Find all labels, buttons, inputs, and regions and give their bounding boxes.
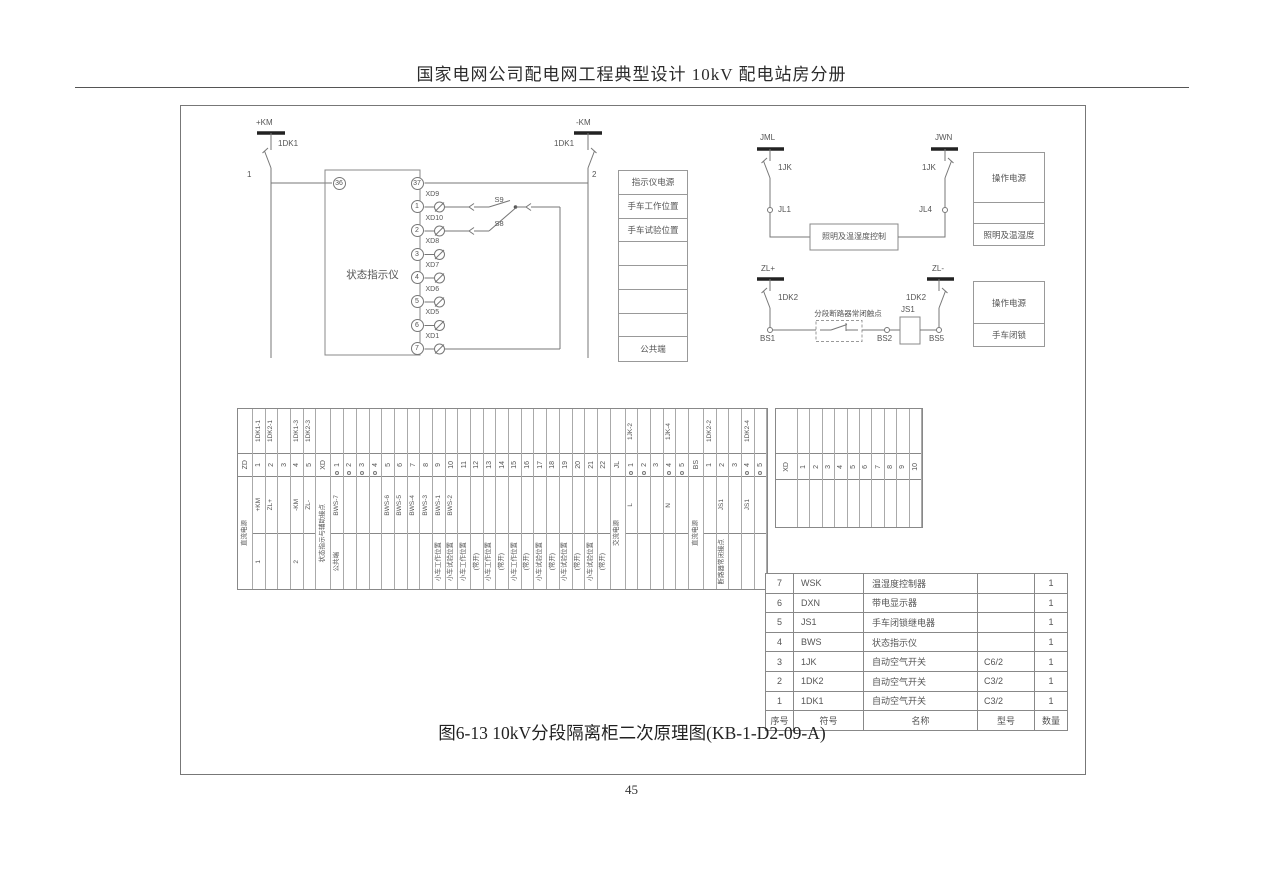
terminal-number: 3 <box>653 463 660 467</box>
terminal-column: 11 小车工作位置 <box>458 409 471 589</box>
function-label: 小车工作位置 <box>461 542 468 581</box>
terminal-number: 16 <box>524 461 531 469</box>
cell-name: 自动空气开关 <box>864 652 978 671</box>
cell-name: 温湿度控制器 <box>864 574 978 593</box>
terminal-number: 4 <box>744 463 751 467</box>
terminal-column: 1DK1-1 1 +KM 1 <box>253 409 266 589</box>
jumper-mark <box>629 471 633 475</box>
jumper-mark <box>642 471 646 475</box>
jumper-mark <box>680 471 684 475</box>
terminal-number: 17 <box>537 461 544 469</box>
cell-model: C6/2 <box>978 652 1035 671</box>
terminal-group-zd: ZD 直流电源 1DK1-1 1 +KM 1 1DK2-1 2 ZL+ <box>238 409 316 589</box>
jumper-mark <box>758 471 762 475</box>
cell-symbol: WSK <box>794 574 864 593</box>
function-label: (常开) <box>550 553 557 570</box>
terminal-label-jl1: JL1 <box>778 206 791 214</box>
switch-label: S9 <box>495 195 504 204</box>
group-name: XD <box>320 460 327 470</box>
terminal-column: 10 BWS-2 小车试验位置 <box>446 409 459 589</box>
terminal-column: 5 <box>676 409 689 589</box>
terminal-column: 8 BWS-3 <box>420 409 433 589</box>
group-name: JL <box>614 461 621 468</box>
bus-label-km-plus: +KM <box>256 119 273 127</box>
terminal-number: 14 <box>499 461 506 469</box>
cell-qty: 1 <box>1035 613 1067 632</box>
xd-terminal-strip: XD 1 2 3 <box>775 408 923 528</box>
cell-symbol: 1DK1 <box>794 692 864 711</box>
legend-row: 手车工作位置 <box>619 195 687 219</box>
indicator-legend-table: 指示仪电源手车工作位置手车试验位置公共端 <box>618 170 688 362</box>
terminal-number: 3 <box>732 463 739 467</box>
cell-seq: 6 <box>766 594 794 613</box>
wire-label-mid: BWS-3 <box>423 495 430 516</box>
terminal-group-bs: BS 直流电源 1DK2-2 1 2 JS1 <box>689 409 767 589</box>
lamp-label: XD8 <box>426 238 440 245</box>
cell-model <box>978 574 1035 593</box>
bus-label-zl-minus: ZL- <box>932 265 944 273</box>
cell-qty: 1 <box>1035 692 1067 711</box>
terminal-number: 19 <box>562 461 569 469</box>
function-label: (常开) <box>600 553 607 570</box>
main-terminal-strip: ZD 直流电源 1DK1-1 1 +KM 1 1DK2-1 2 ZL+ <box>237 408 768 590</box>
cell-qty: 1 <box>1035 672 1067 691</box>
breaker-label-1dk2-left: 1DK2 <box>778 294 798 302</box>
legend-row: 操作电源 <box>974 282 1044 324</box>
function-label: 小车工作位置 <box>512 542 519 581</box>
terminal-column: 21 小车试验位置 <box>585 409 598 589</box>
group-name: ZD <box>242 460 249 469</box>
terminal-number: 7 <box>410 463 417 467</box>
group-function-label: 直流电源 <box>693 520 700 546</box>
terminal-column: 17 小车试验位置 <box>534 409 547 589</box>
function-label: 小车试验位置 <box>562 542 569 581</box>
terminal-column: 4 <box>370 409 383 589</box>
terminal-circle: 5 <box>411 295 424 308</box>
breaker-label-1dk1-left: 1DK1 <box>278 140 298 148</box>
table-row: 5 JS1 手车闭锁继电器 1 <box>766 612 1067 632</box>
table-row: 4 BWS 状态指示仪 1 <box>766 632 1067 652</box>
lamp-label: XD7 <box>426 262 440 269</box>
cell-model <box>978 633 1035 652</box>
terminal-column: 10 <box>910 409 922 527</box>
jumper-mark <box>667 471 671 475</box>
terminal-label-jl4: JL4 <box>919 206 932 214</box>
terminal-number: 1 <box>800 465 807 469</box>
controller-box-label: 照明及温湿度控制 <box>810 231 898 242</box>
jumper-mark <box>745 471 749 475</box>
terminal-column: 4 <box>835 409 847 527</box>
table-row: 2 1DK2 自动空气开关 C3/2 1 <box>766 671 1067 691</box>
wire-label-top: 1DK2-2 <box>707 420 714 442</box>
terminal-column: 3 <box>278 409 291 589</box>
cell-symbol: BWS <box>794 633 864 652</box>
terminal-number: 8 <box>423 463 430 467</box>
terminal-column: 13 小车工作位置 <box>484 409 497 589</box>
cell-model: C3/2 <box>978 672 1035 691</box>
cell-symbol: JS1 <box>794 613 864 632</box>
cell-qty: 1 <box>1035 652 1067 671</box>
wire-label-mid: BWS-6 <box>385 495 392 516</box>
terminal-number: 2 <box>346 463 353 467</box>
wire-label-top: 1DK1-1 <box>256 420 263 442</box>
wire-label-top: 1JK-2 <box>628 423 635 440</box>
wire-label-mid: JS1 <box>719 499 726 510</box>
terminal-number: 13 <box>486 461 493 469</box>
cell-seq: 5 <box>766 613 794 632</box>
terminal-number: 5 <box>757 463 764 467</box>
wire-label-mid: ZL+ <box>268 499 275 510</box>
terminal-number: 2 <box>268 463 275 467</box>
wire-label-mid: -KM <box>294 499 301 511</box>
relay-label-js1: JS1 <box>901 306 915 314</box>
terminal-number: 6 <box>862 465 869 469</box>
wire-label-top: 1DK2-1 <box>268 420 275 442</box>
cell-qty: 1 <box>1035 594 1067 613</box>
terminal-circle: 6 <box>411 319 424 332</box>
terminal-column: 1JK-2 1 L <box>626 409 639 589</box>
terminal-number: 6 <box>397 463 404 467</box>
terminal-number: 10 <box>912 463 919 471</box>
table-row: 6 DXN 带电显示器 1 <box>766 593 1067 613</box>
cell-symbol: 1DK2 <box>794 672 864 691</box>
terminal-column: 18 (常开) <box>547 409 560 589</box>
wire-label-mid: ZL- <box>306 500 313 510</box>
terminal-circle: 7 <box>411 342 424 355</box>
terminal-columns-xd: 1 BWS-7 公共端 2 3 <box>331 409 610 589</box>
group-function-label: 交流电源 <box>614 520 621 546</box>
terminal-column: 1DK2-2 1 <box>704 409 717 589</box>
terminal-number: 10 <box>448 461 455 469</box>
terminal-number: 5 <box>306 463 313 467</box>
terminal-number: 1 <box>628 463 635 467</box>
breaker-label-1jk-right: 1JK <box>922 164 936 172</box>
cell-qty: 1 <box>1035 574 1067 593</box>
cell-name: 带电显示器 <box>864 594 978 613</box>
lamp-label: XD10 <box>426 215 444 222</box>
terminal-label-bs5: BS5 <box>929 335 944 343</box>
breaker-label-1dk1-right: 1DK1 <box>554 140 574 148</box>
breaker-label-1jk-left: 1JK <box>778 164 792 172</box>
function-label: 公共端 <box>334 552 341 572</box>
cell-seq: 7 <box>766 574 794 593</box>
lamp-label: XD5 <box>426 309 440 316</box>
terminal-number: 22 <box>600 461 607 469</box>
terminal-number: 9 <box>435 463 442 467</box>
group-function-label: 状态指示与辅助接点 <box>320 504 327 563</box>
terminal-columns-jl: 1JK-2 1 L 2 3 <box>626 409 689 589</box>
cell-model <box>978 594 1035 613</box>
parts-table-rows: 7 WSK 温湿度控制器 1 6 DXN 带电显示器 1 5 JS1 <box>766 574 1067 710</box>
cell-seq: 3 <box>766 652 794 671</box>
wire-label-top: 1DK1-3 <box>294 420 301 442</box>
page-number: 45 <box>0 782 1263 798</box>
function-label: 1 <box>256 560 263 564</box>
table-row: 1 1DK1 自动空气开关 C3/2 1 <box>766 691 1067 711</box>
terminal-circle: 3 <box>411 248 424 261</box>
wire-label-mid: BWS-7 <box>334 495 341 516</box>
terminal-number: 20 <box>575 461 582 469</box>
terminal-column: 1 <box>798 409 810 527</box>
terminal-circle: 4 <box>411 271 424 284</box>
terminal-label-bs1: BS1 <box>760 335 775 343</box>
jumper-mark <box>335 471 339 475</box>
wire-label-mid: JS1 <box>745 499 752 510</box>
figure-caption: 图6-13 10kV分段隔离柜二次原理图(KB-1-D2-09-A) <box>180 720 1084 745</box>
group-header-zd: ZD 直流电源 <box>238 409 253 589</box>
table-row: 3 1JK 自动空气开关 C6/2 1 <box>766 651 1067 671</box>
jumper-mark <box>373 471 377 475</box>
function-label: 小车试验位置 <box>537 542 544 581</box>
bus-label-jml: JML <box>760 134 775 142</box>
terminal-column: 5 <box>755 409 768 589</box>
breaker-label-1dk2-right: 1DK2 <box>906 294 926 302</box>
document-page: 国家电网公司配电网工程典型设计 10kV 配电站房分册 <box>0 0 1263 892</box>
legend-row: 指示仪电源 <box>619 171 687 195</box>
terminal-column: 3 <box>823 409 835 527</box>
indicator-row: 7 XD1 <box>411 337 581 361</box>
terminal-column: 16 (常开) <box>522 409 535 589</box>
terminal-number: 4 <box>372 463 379 467</box>
legend-row <box>619 314 687 338</box>
legend-row <box>619 290 687 314</box>
wire-label-mid: BWS-2 <box>448 495 455 516</box>
device-label-status-indicator: 状态指示仪 <box>325 267 420 282</box>
legend-row <box>619 266 687 290</box>
node-label-1: 1 <box>247 171 251 179</box>
wire-label-mid: BWS-1 <box>436 495 443 516</box>
node-label-2: 2 <box>592 171 596 179</box>
legend-row <box>619 242 687 266</box>
terminal-column: 6 <box>860 409 872 527</box>
terminal-group-xd: XD 状态指示与辅助接点 1 BWS-7 公共端 2 <box>316 409 610 589</box>
terminal-circle-36: 36 <box>333 177 346 190</box>
cell-name: 自动空气开关 <box>864 692 978 711</box>
function-label: (常开) <box>524 553 531 570</box>
terminal-group-jl: JL 交流电源 1JK-2 1 L 2 <box>611 409 689 589</box>
function-label: (常开) <box>499 553 506 570</box>
terminal-column: 6 BWS-5 <box>395 409 408 589</box>
terminal-number: 12 <box>473 461 480 469</box>
terminal-column: 19 小车试验位置 <box>560 409 573 589</box>
legend-row: 手车试验位置 <box>619 219 687 243</box>
group-header-jl: JL 交流电源 <box>611 409 626 589</box>
terminal-circle: 1 <box>411 200 424 213</box>
bus-label-zl-plus: ZL+ <box>761 265 775 273</box>
group-name: BS <box>693 460 700 469</box>
table-row: 7 WSK 温湿度控制器 1 <box>766 574 1067 593</box>
terminal-number: 5 <box>385 463 392 467</box>
terminal-column: 1DK2-4 4 JS1 <box>742 409 755 589</box>
terminal-column: 15 小车工作位置 <box>509 409 522 589</box>
group-header-xd: XD 状态指示与辅助接点 <box>316 409 331 589</box>
lighting-legend-table: 操作电源照明及温湿度 <box>973 152 1045 246</box>
terminal-column: 22 (常开) <box>598 409 611 589</box>
wire-label-mid: BWS-5 <box>397 495 404 516</box>
cell-model <box>978 613 1035 632</box>
terminal-column: 5 BWS-6 <box>382 409 395 589</box>
bus-label-jwn: JWN <box>935 134 952 142</box>
wire-label-mid: +KM <box>256 498 263 512</box>
terminal-column: 9 <box>897 409 909 527</box>
terminal-number: 11 <box>461 461 468 468</box>
terminal-number: 8 <box>887 465 894 469</box>
wire-label-top: 1JK-4 <box>666 423 673 440</box>
terminal-column: 3 <box>357 409 370 589</box>
terminal-number: 18 <box>549 461 556 469</box>
terminal-number: 4 <box>666 463 673 467</box>
terminal-column: 7 <box>872 409 884 527</box>
cell-symbol: DXN <box>794 594 864 613</box>
function-label: (常开) <box>474 553 481 570</box>
xd-strip-columns: 1 2 3 4 <box>798 409 922 527</box>
terminal-number: 2 <box>641 463 648 467</box>
terminal-column: 1JK-4 4 N <box>664 409 677 589</box>
group-function-label: 直流电源 <box>242 520 249 546</box>
terminal-column: 1 BWS-7 公共端 <box>331 409 344 589</box>
function-label: 小车试验位置 <box>448 542 455 581</box>
terminal-circle-37: 37 <box>411 177 424 190</box>
terminal-number: 3 <box>281 463 288 467</box>
lamp-label: XD1 <box>426 333 440 340</box>
terminal-column: 5 <box>848 409 860 527</box>
switch-label: S8 <box>495 219 504 228</box>
parts-table: 7 WSK 温湿度控制器 1 6 DXN 带电显示器 1 5 JS1 <box>765 573 1068 731</box>
jumper-mark <box>347 471 351 475</box>
bus-label-km-minus: -KM <box>576 119 591 127</box>
legend-row <box>974 203 1044 224</box>
terminal-number: 15 <box>511 461 518 469</box>
cell-seq: 2 <box>766 672 794 691</box>
legend-row: 操作电源 <box>974 153 1044 203</box>
terminal-column: 3 <box>651 409 664 589</box>
terminal-number: 1 <box>255 463 262 467</box>
terminal-number: 5 <box>850 465 857 469</box>
function-label: 小车工作位置 <box>436 542 443 581</box>
terminal-number: 3 <box>825 465 832 469</box>
terminal-number: 9 <box>899 465 906 469</box>
legend-row: 手车闭锁 <box>974 324 1044 346</box>
terminal-number: 4 <box>293 463 300 467</box>
wire-label-top: 1DK2-4 <box>745 420 752 442</box>
cell-seq: 4 <box>766 633 794 652</box>
terminal-column: 7 BWS-4 <box>408 409 421 589</box>
terminal-column: 9 BWS-1 小车工作位置 <box>433 409 446 589</box>
terminal-number: 1 <box>334 463 341 467</box>
terminal-column: 1DK1-3 4 -KM 2 <box>291 409 304 589</box>
wire-label-mid: N <box>666 503 673 508</box>
terminal-label-bs2: BS2 <box>877 335 892 343</box>
terminal-number: 2 <box>719 463 726 467</box>
terminal-number: 1 <box>706 463 713 467</box>
cell-model: C3/2 <box>978 692 1035 711</box>
legend-row: 公共端 <box>619 337 687 361</box>
group-header-bs: BS 直流电源 <box>689 409 704 589</box>
cell-symbol: 1JK <box>794 652 864 671</box>
terminal-column: 2 <box>638 409 651 589</box>
indicator-terminal-rows: 1 XD9 S9 2 XD10 S8 3 XD8 4 XD7 <box>411 195 581 361</box>
function-label: 断路器常闭接点 <box>719 539 726 585</box>
legend-row: 照明及温湿度 <box>974 224 1044 245</box>
group-name: XD <box>783 462 790 472</box>
terminal-column: 2 JS1 断路器常闭接点 <box>717 409 730 589</box>
cell-name: 自动空气开关 <box>864 672 978 691</box>
cell-name: 手车闭锁继电器 <box>864 613 978 632</box>
terminal-number: 7 <box>875 465 882 469</box>
jumper-mark <box>360 471 364 475</box>
xd-strip-header: XD <box>776 409 798 527</box>
lamp-label: XD6 <box>426 286 440 293</box>
terminal-circle: 2 <box>411 224 424 237</box>
interlock-legend-table: 操作电源手车闭锁 <box>973 281 1045 347</box>
terminal-column: 20 (常开) <box>573 409 586 589</box>
function-label: (常开) <box>575 553 582 570</box>
terminal-column: 2 <box>344 409 357 589</box>
nc-contact-label: 分段断路器常闭触点 <box>798 308 898 319</box>
terminal-column: 12 (常开) <box>471 409 484 589</box>
lamp-label: XD9 <box>426 191 440 198</box>
terminal-column: 14 (常开) <box>496 409 509 589</box>
terminal-number: 2 <box>813 465 820 469</box>
terminal-column: 1DK2-1 2 ZL+ <box>266 409 279 589</box>
wire-label-top: 1DK2-3 <box>306 420 313 442</box>
terminal-column: 8 <box>885 409 897 527</box>
terminal-column: 1DK2-3 5 ZL- <box>304 409 317 589</box>
terminal-number: 3 <box>359 463 366 467</box>
cell-qty: 1 <box>1035 633 1067 652</box>
function-label: 小车工作位置 <box>486 542 493 581</box>
cell-name: 状态指示仪 <box>864 633 978 652</box>
wire-label-mid: BWS-4 <box>410 495 417 516</box>
cell-seq: 1 <box>766 692 794 711</box>
terminal-number: 21 <box>588 461 595 469</box>
function-label: 小车试验位置 <box>588 542 595 581</box>
terminal-columns-zd: 1DK1-1 1 +KM 1 1DK2-1 2 ZL+ <box>253 409 316 589</box>
terminal-column: 2 <box>810 409 822 527</box>
wire-label-mid: L <box>628 503 635 507</box>
terminal-number: 5 <box>679 463 686 467</box>
terminal-column: 3 <box>729 409 742 589</box>
terminal-columns-bs: 1DK2-2 1 2 JS1 断路器常闭接点 3 <box>704 409 767 589</box>
function-label: 2 <box>294 560 301 564</box>
terminal-number: 4 <box>837 465 844 469</box>
